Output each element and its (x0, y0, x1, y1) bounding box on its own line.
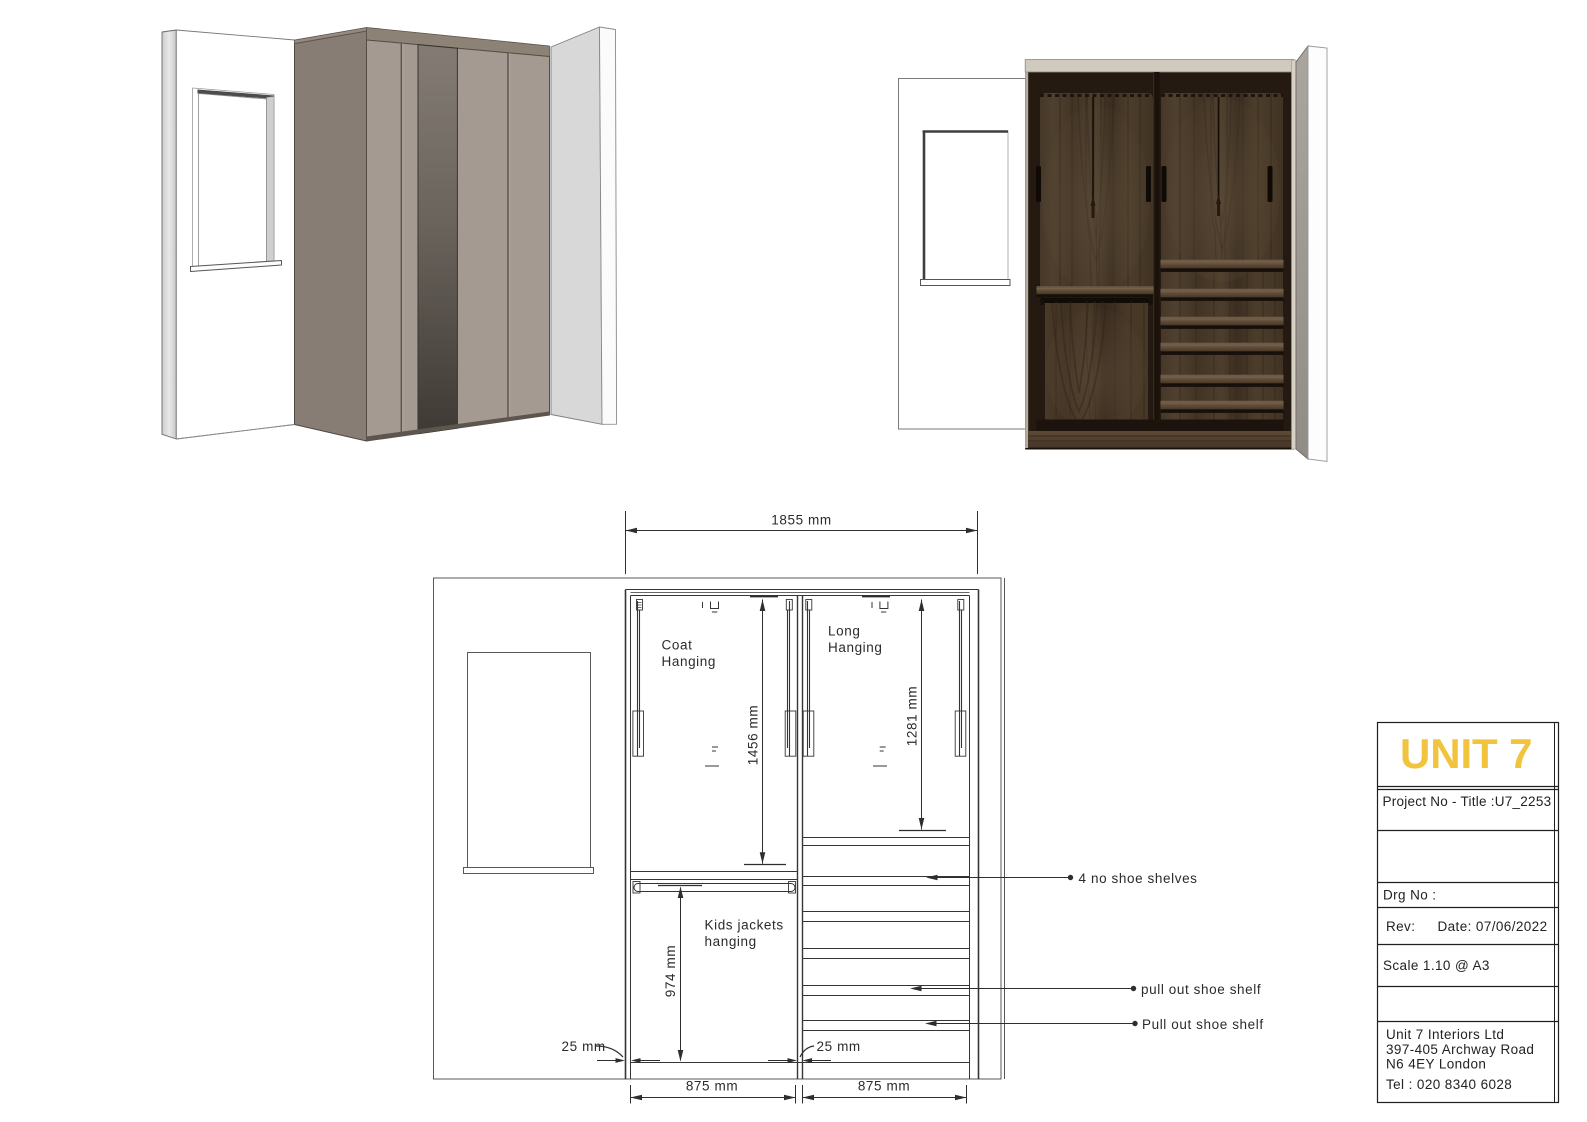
svg-text:Project No - Title :U7_2253: Project No - Title :U7_2253 (1383, 794, 1552, 809)
svg-text:1855 mm: 1855 mm (771, 513, 831, 528)
svg-text:4 no shoe shelves: 4 no shoe shelves (1079, 871, 1198, 886)
svg-text:Drg No :: Drg No : (1383, 888, 1436, 903)
svg-text:875 mm: 875 mm (858, 1079, 910, 1094)
svg-text:Unit 7 Interiors Ltd: Unit 7 Interiors Ltd (1386, 1027, 1504, 1042)
svg-text:Scale 1.10 @ A3: Scale 1.10 @ A3 (1383, 958, 1490, 973)
svg-text:Coat: Coat (662, 638, 693, 653)
svg-text:Date: 07/06/2022: Date: 07/06/2022 (1438, 919, 1548, 934)
svg-text:Pull out shoe shelf: Pull out shoe shelf (1142, 1017, 1264, 1032)
svg-text:hanging: hanging (705, 934, 757, 949)
svg-text:25 mm: 25 mm (817, 1039, 861, 1054)
svg-text:N6 4EY London: N6 4EY London (1386, 1057, 1486, 1072)
svg-text:1456 mm: 1456 mm (746, 705, 761, 765)
svg-text:UNIT 7: UNIT 7 (1400, 730, 1534, 777)
svg-text:25 mm: 25 mm (562, 1039, 606, 1054)
svg-text:Kids jackets: Kids jackets (705, 918, 784, 933)
svg-text:Tel : 020 8340 6028: Tel : 020 8340 6028 (1386, 1077, 1512, 1092)
svg-text:Hanging: Hanging (662, 654, 717, 669)
svg-text:Hanging: Hanging (828, 640, 883, 655)
svg-text:875 mm: 875 mm (686, 1079, 738, 1094)
svg-text:397-405 Archway Road: 397-405 Archway Road (1386, 1042, 1534, 1057)
svg-text:Long: Long (828, 624, 860, 639)
svg-text:1281 mm: 1281 mm (905, 686, 920, 746)
svg-text:974 mm: 974 mm (663, 945, 678, 997)
svg-text:pull out shoe shelf: pull out shoe shelf (1141, 982, 1261, 997)
svg-text:Rev:: Rev: (1386, 919, 1415, 934)
